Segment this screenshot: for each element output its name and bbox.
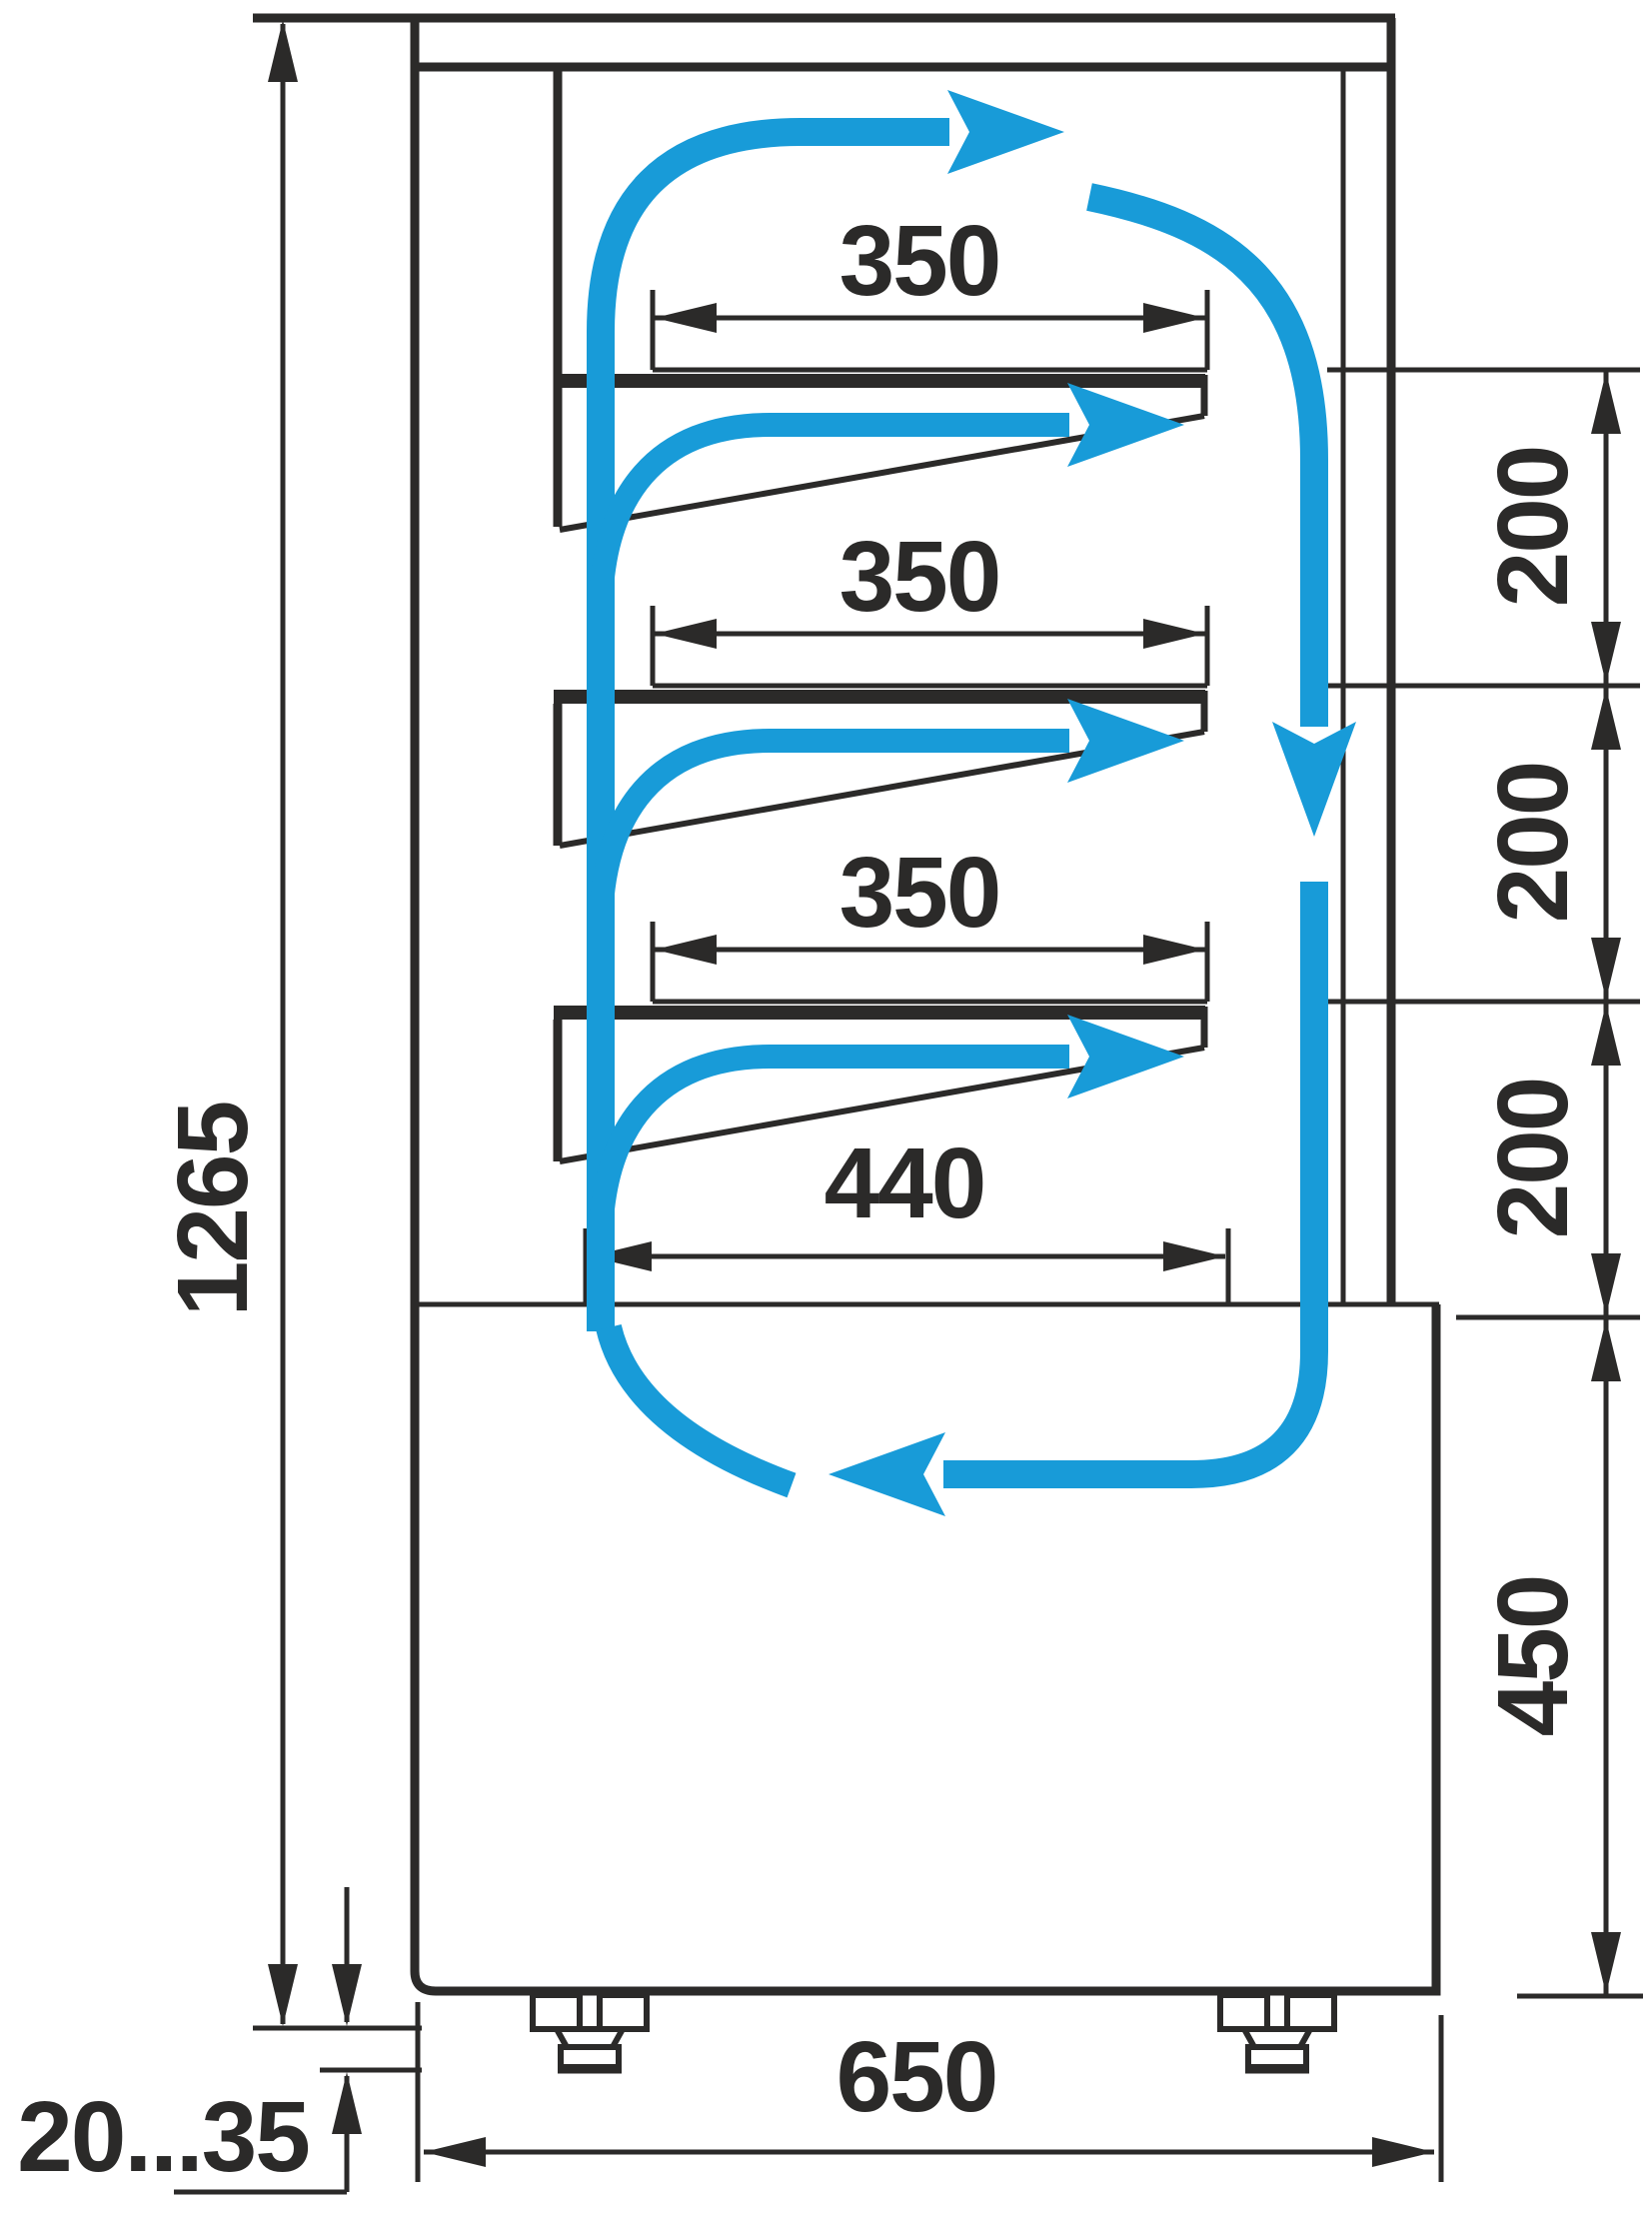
left-foot — [533, 1995, 647, 2069]
dim-bottom-shelf-depth — [586, 1228, 1228, 1304]
airflow-arrowhead-shelf-3 — [1067, 1015, 1184, 1099]
arrowhead-200-2-top — [1591, 688, 1621, 750]
dimension-lines — [174, 24, 1643, 2192]
airflow-front-descent-lower — [943, 882, 1314, 1474]
airflow-arrowhead-shelf-1 — [1067, 383, 1184, 467]
left-foot-disc — [561, 2047, 619, 2067]
right-foot — [1220, 1995, 1334, 2069]
airflow-bottom-return-arc — [609, 1327, 792, 1485]
right-foot-plate-b — [1287, 1995, 1334, 2029]
arrowhead-2035-down — [332, 1964, 362, 2026]
arrowhead-1265-top — [268, 20, 298, 82]
label-shelf-depth-2: 350 — [839, 521, 1000, 633]
arrowhead-350-1-left — [655, 303, 717, 333]
label-foot-adjust-range: 20...35 — [17, 2081, 309, 2193]
airflow-front-descent-upper — [1089, 197, 1314, 727]
arrowhead-350-1-right — [1143, 303, 1205, 333]
arrowhead-1265-bottom — [268, 1964, 298, 2026]
arrowhead-450-top — [1591, 1319, 1621, 1381]
label-base-height: 450 — [1477, 1576, 1589, 1737]
arrowhead-200-1-top — [1591, 372, 1621, 434]
cabinet-structure — [253, 14, 1439, 2069]
arrowhead-350-3-left — [655, 935, 717, 965]
arrowhead-350-3-right — [1143, 935, 1205, 965]
label-overall-height: 1265 — [157, 1103, 269, 1316]
arrowhead-350-2-right — [1143, 619, 1205, 649]
right-foot-disc — [1248, 2047, 1306, 2067]
arrowhead-200-1-bottom — [1591, 622, 1621, 684]
right-foot-plate-a — [1220, 1995, 1267, 2029]
arrowhead-650-right — [1372, 2137, 1434, 2167]
arrowhead-650-left — [424, 2137, 486, 2167]
arrowhead-200-3-top — [1591, 1004, 1621, 1066]
arrowhead-200-3-bottom — [1591, 1253, 1621, 1315]
label-overall-depth: 650 — [836, 2021, 997, 2133]
left-foot-plate-a — [533, 1995, 580, 2029]
left-foot-plate-b — [600, 1995, 647, 2029]
label-bottom-shelf-depth: 440 — [825, 1127, 985, 1239]
technical-drawing-canvas: 350 350 350 440 650 20...35 1265 200 200… — [0, 0, 1652, 2213]
dimension-labels: 350 350 350 440 650 20...35 1265 200 200… — [17, 205, 1589, 2193]
arrowhead-450-bottom — [1591, 1932, 1621, 1994]
display-case-diagram: 350 350 350 440 650 20...35 1265 200 200… — [0, 0, 1652, 2213]
arrowhead-2035-up — [332, 2072, 362, 2134]
airflow-arrowhead-shelf-2 — [1067, 699, 1184, 783]
label-shelf-gap-3: 200 — [1477, 1079, 1589, 1239]
arrowhead-200-2-bottom — [1591, 938, 1621, 1000]
arrowhead-440-right — [1163, 1241, 1225, 1271]
dim-overall-height — [253, 24, 422, 2028]
arrowhead-350-2-left — [655, 619, 717, 649]
label-shelf-gap-1: 200 — [1477, 447, 1589, 608]
label-shelf-gap-2: 200 — [1477, 763, 1589, 924]
airflow-arrowhead-top-right — [947, 90, 1064, 174]
airflow-arrowhead-bottom-left — [828, 1432, 945, 1516]
label-shelf-depth-1: 350 — [839, 205, 1000, 317]
label-shelf-depth-3: 350 — [839, 837, 1000, 949]
